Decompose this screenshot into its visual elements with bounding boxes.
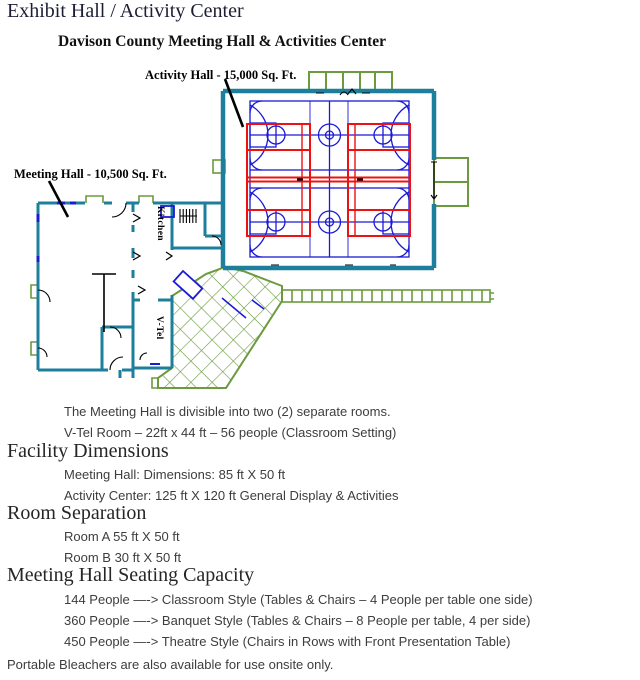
activity-hall-label: Activity Hall - 15,000 Sq. Ft.	[145, 68, 296, 82]
heading-room-separation: Room Separation	[7, 502, 146, 525]
document-page: Exhibit Hall / Activity Center Davison C…	[0, 0, 640, 680]
vtel-label: V-Tel	[154, 316, 164, 340]
heading-facility-dimensions: Facility Dimensions	[7, 440, 169, 463]
volleyball-courts	[247, 124, 410, 236]
capacity-classroom-item: 144 People —-> Classroom Style (Tables &…	[64, 592, 533, 607]
exit-vestibule-right	[434, 158, 468, 206]
stairs	[180, 209, 197, 223]
walkway	[282, 290, 494, 302]
facility-item-meeting-hall: Meeting Hall: Dimensions: 85 ft X 50 ft	[64, 467, 285, 482]
entrance-vestibule-top	[309, 72, 392, 91]
heading-seating-capacity: Meeting Hall Seating Capacity	[7, 564, 254, 587]
note-divisible: The Meeting Hall is divisible into two (…	[64, 404, 391, 419]
kitchen-label: Kitchen	[155, 206, 165, 241]
capacity-theatre-item: 450 People —-> Theatre Style (Chairs in …	[64, 634, 510, 649]
facility-item-activity-center: Activity Center: 125 ft X 120 ft General…	[64, 488, 399, 503]
bleachers-note: Portable Bleachers are also available fo…	[7, 657, 333, 672]
meeting-hall-label: Meeting Hall - 10,500 Sq. Ft.	[14, 167, 167, 181]
floor-plan: Activity Hall - 15,000 Sq. Ft. Meeting H…	[0, 0, 640, 400]
room-b-item: Room B 30 ft X 50 ft	[64, 550, 181, 565]
capacity-banquet-item: 360 People —-> Banquet Style (Tables & C…	[64, 613, 530, 628]
note-vtel-room: V-Tel Room – 22ft x 44 ft – 56 people (C…	[64, 425, 396, 440]
activity-hall-outline	[223, 91, 434, 268]
door-zigzags	[133, 214, 172, 294]
room-divider	[92, 274, 116, 332]
room-a-item: Room A 55 ft X 50 ft	[64, 529, 180, 544]
